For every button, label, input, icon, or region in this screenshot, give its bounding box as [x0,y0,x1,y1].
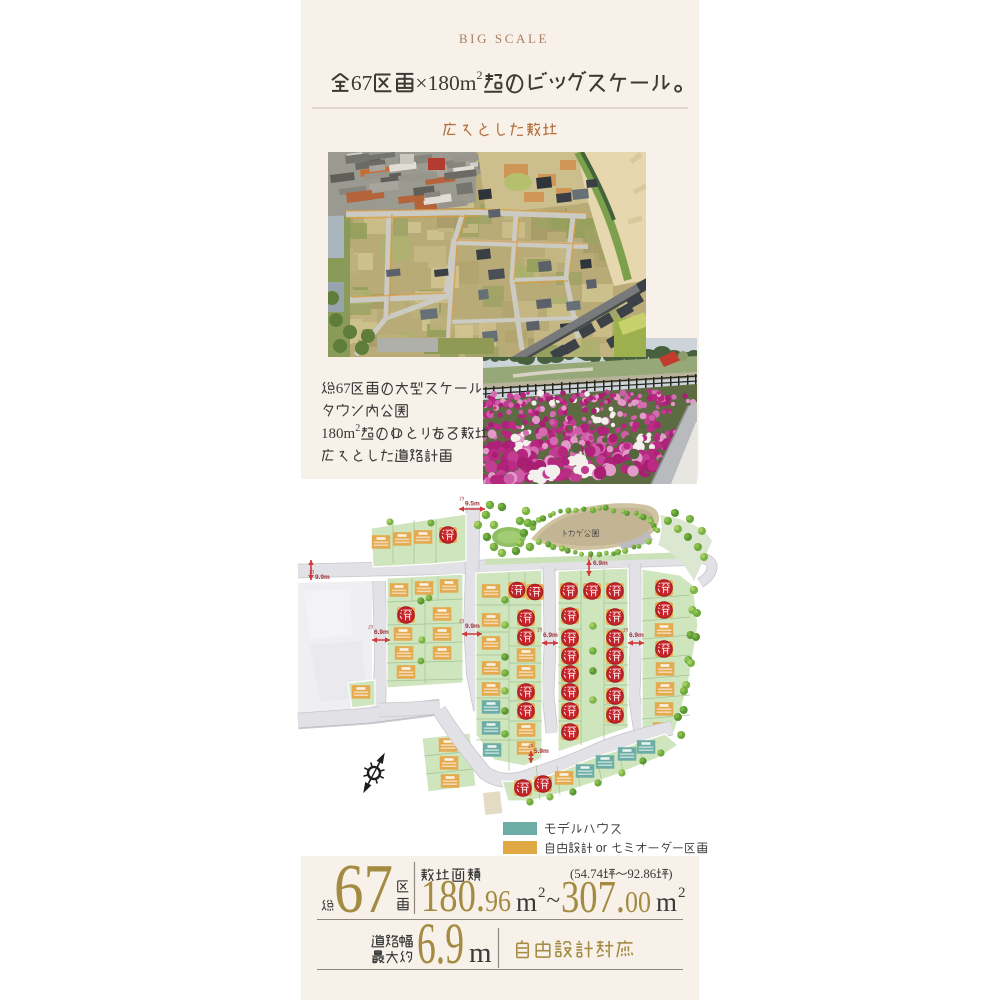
svg-text:2: 2 [538,885,546,901]
svg-text:~: ~ [547,887,561,914]
svg-text:m: m [516,887,537,917]
svg-text:6.9m: 6.9m [629,632,644,639]
svg-text:307.: 307. [561,871,625,922]
svg-text:BIG SCALE: BIG SCALE [459,31,549,46]
svg-text:96: 96 [485,883,511,918]
svg-text:9.5m: 9.5m [465,501,480,508]
svg-text:): ) [668,867,672,881]
svg-text:or: or [596,841,607,855]
svg-text:6.9m: 6.9m [543,632,558,639]
svg-text:92.86: 92.86 [627,867,656,881]
svg-text:m: m [460,71,477,95]
svg-text:×180: ×180 [415,71,459,95]
svg-text:m: m [469,937,492,969]
svg-text:6.9m: 6.9m [374,629,389,636]
svg-text:9.9m: 9.9m [315,574,330,581]
svg-text:9.9m: 9.9m [465,623,480,630]
svg-text:6.9: 6.9 [417,911,464,976]
svg-text:67: 67 [336,381,352,397]
svg-text:m: m [656,887,677,917]
svg-text:00: 00 [625,884,651,919]
svg-text:5.9m: 5.9m [534,748,549,755]
svg-text:67: 67 [334,851,393,928]
svg-text:2: 2 [477,68,483,82]
svg-text:2: 2 [355,423,360,434]
svg-text:6.9m: 6.9m [593,560,608,567]
svg-text:67: 67 [351,71,373,95]
svg-text:2: 2 [678,885,686,901]
svg-text:180: 180 [321,426,344,442]
svg-text:m: m [344,426,356,442]
